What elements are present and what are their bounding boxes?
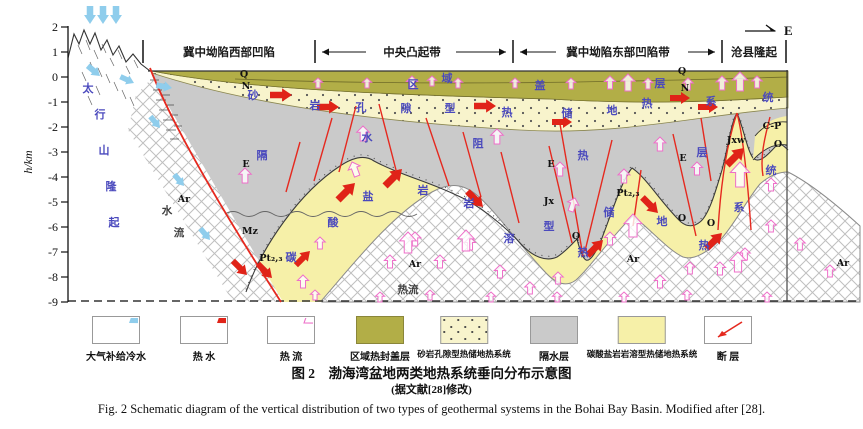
strat-label: N	[681, 83, 690, 94]
strat-label: O	[678, 213, 686, 224]
legend-swatch	[704, 316, 752, 344]
diagram-label: 热	[642, 96, 653, 110]
strat-label: E	[242, 159, 249, 170]
legend-item: 砂岩孔隙型热储地热系统	[417, 316, 511, 360]
cold-water-arrow	[118, 72, 136, 87]
diagram-label: 域	[442, 71, 453, 85]
legend-item: 大气补给冷水	[86, 316, 146, 363]
diagram-label: 热	[578, 245, 589, 259]
cold-water-arrow	[97, 6, 109, 24]
diagram-label: 盐	[363, 189, 374, 203]
strat-label: Ar	[626, 254, 640, 265]
legend-item: 热 水	[180, 316, 228, 363]
strat-label: N	[242, 81, 251, 92]
diagram-label: 碳	[286, 250, 298, 264]
legend-label: 热 流	[267, 348, 315, 363]
depth-axis: 210-1-2-3-4-5-6-7-8-9h/km	[21, 20, 68, 309]
legend-item: 热 流	[267, 316, 315, 363]
diagram-label: 山	[99, 143, 110, 157]
legend-swatch	[618, 316, 666, 344]
legend-label: 碳酸盐岩岩溶型热储地热系统	[587, 348, 698, 360]
cold-water-arrow	[110, 6, 122, 24]
legend-swatch	[267, 316, 315, 344]
zone-label: 冀中坳陷东部凹陷带	[566, 45, 670, 59]
diagram-label: 岩	[463, 196, 475, 210]
diagram-label: 型	[445, 101, 456, 115]
axis-tick-label: -9	[48, 295, 58, 309]
diagram-label: 水	[362, 130, 374, 144]
diagram-label: 系	[734, 200, 745, 214]
caption-en: Fig. 2 Schematic diagram of the vertical…	[0, 402, 863, 417]
axis-tick-label: -8	[48, 270, 58, 284]
zone-label: 冀中坳陷西部凹陷	[183, 45, 275, 59]
legend-swatch	[530, 316, 578, 344]
strat-label: Pt₂,₃	[259, 253, 282, 264]
strat-label: Q	[240, 69, 248, 80]
axis-tick-label: -4	[48, 170, 58, 184]
legend: 大气补给冷水热 水热 流区域热封盖层砂岩孔隙型热储地热系统隔水层碳酸盐岩岩溶型热…	[0, 312, 863, 360]
axis-tick-label: 1	[52, 45, 58, 59]
diagram-label: 热流	[398, 283, 419, 296]
cold-water-arrow	[84, 62, 103, 80]
strat-label: E	[679, 153, 686, 164]
east-direction-indicator: E	[745, 23, 793, 38]
diagram-label: 盖	[535, 78, 546, 92]
strat-label: Jxw	[726, 135, 746, 146]
cold-water-arrow	[84, 6, 96, 24]
legend-label: 隔水层	[530, 348, 578, 363]
diagram-label: 隔	[257, 148, 268, 162]
strat-label: Jx	[543, 196, 554, 207]
fault-icon	[718, 322, 742, 337]
axis-tick-label: -7	[48, 245, 58, 259]
cross-section-diagram: 210-1-2-3-4-5-6-7-8-9h/km 冀中坳陷西部凹陷中央凸起带冀…	[0, 0, 863, 312]
east-label: E	[784, 23, 793, 38]
legend-item: 碳酸盐岩岩溶型热储地热系统	[587, 316, 698, 360]
legend-swatch	[92, 316, 140, 344]
strat-label: C-P	[763, 121, 782, 132]
diagram-label: 层	[696, 146, 708, 159]
zone-header: 冀中坳陷西部凹陷中央凸起带冀中坳陷东部凹陷带沧县隆起	[143, 40, 786, 63]
diagram-label: 地	[657, 214, 668, 228]
arrow-red-icon	[212, 318, 226, 330]
diagram-label: 水	[161, 204, 173, 217]
diagram-label: 热	[502, 105, 513, 119]
strat-label: Mz	[242, 226, 259, 237]
diagram-label: 系	[706, 94, 717, 108]
diagram-label: 区	[408, 78, 419, 91]
axis-tick-label: -2	[48, 120, 58, 134]
legend-label: 砂岩孔隙型热储地热系统	[417, 348, 511, 360]
strat-label: Ar	[177, 194, 191, 205]
figure-geothermal-cross-section: 210-1-2-3-4-5-6-7-8-9h/km 冀中坳陷西部凹陷中央凸起带冀…	[0, 0, 863, 429]
diagram-label: 层	[654, 77, 666, 90]
strat-label: Ar	[836, 258, 850, 269]
caption-cn-title: 图 2 渤海湾盆地两类地热系统垂向分布示意图	[0, 362, 863, 382]
diagram-label: 隙	[401, 101, 412, 115]
strat-label: Q	[572, 231, 580, 242]
legend-label: 区域热封盖层	[350, 348, 410, 363]
diagram-label: 起	[108, 215, 121, 229]
axis-tick-label: -1	[48, 95, 58, 109]
legend-item: 区域热封盖层	[350, 316, 410, 363]
legend-label: 大气补给冷水	[86, 348, 146, 363]
axis-tick-label: -3	[48, 145, 58, 159]
diagram-label: 阻	[473, 136, 484, 150]
diagram-label: 隆	[106, 179, 118, 193]
axis-tick-label: 2	[52, 20, 58, 34]
zone-label: 中央凸起带	[383, 45, 441, 59]
diagram-label: 统	[763, 90, 774, 104]
axis-tick-label: -5	[48, 195, 58, 209]
zone-dim-arrowhead	[322, 49, 329, 56]
diagram-label: 岩	[417, 183, 429, 197]
diagram-label: 流	[174, 226, 185, 239]
diagram-label: 统	[766, 163, 777, 177]
diagram-label: 岩	[309, 98, 321, 112]
legend-label: 热 水	[180, 348, 228, 363]
strat-label: E	[547, 159, 554, 170]
diagram-label: 热	[699, 238, 710, 252]
strat-label: Ar	[408, 259, 422, 270]
diagram-label: 太	[82, 81, 95, 95]
strat-label: Q	[678, 66, 686, 77]
legend-item: 隔水层	[530, 316, 578, 363]
strat-label: Pt₂,₃	[616, 188, 639, 199]
zone-dim-arrowhead	[520, 49, 527, 56]
diagram-label: 储	[604, 205, 615, 219]
legend-label: 断 层	[704, 348, 752, 363]
axis-tick-label: 0	[52, 70, 58, 84]
diagram-label: 行	[94, 107, 106, 121]
axis-title: h/km	[21, 150, 35, 174]
arrow-pink-icon	[299, 318, 313, 330]
legend-swatch	[356, 316, 404, 344]
zone-dim-arrowhead	[708, 49, 715, 56]
legend-item: 断 层	[704, 316, 752, 363]
diagram-label: 储	[562, 106, 573, 120]
diagram-label: 型	[544, 219, 555, 233]
zone-label: 沧县隆起	[731, 45, 777, 59]
diagram-label: 热	[578, 148, 589, 162]
diagram-label: 孔	[356, 101, 367, 114]
axis-tick-label: -6	[48, 220, 58, 234]
legend-swatch	[180, 316, 228, 344]
diagram-label: 酸	[328, 215, 340, 229]
caption-cn-note: (据文献[28]修改)	[0, 381, 863, 397]
zone-dim-arrowhead	[499, 49, 506, 56]
arrow-blue-icon	[124, 318, 138, 330]
diagram-label: 地	[607, 103, 618, 117]
diagram-label: 溶	[504, 231, 515, 245]
strat-label: O	[774, 139, 782, 150]
legend-swatch	[440, 316, 488, 344]
strat-label: O	[707, 218, 715, 229]
